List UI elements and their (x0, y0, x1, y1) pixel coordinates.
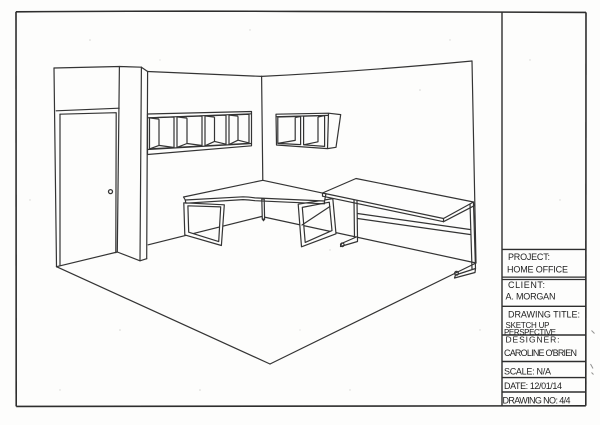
svg-text:SCALE: N/A: SCALE: N/A (504, 367, 551, 377)
svg-text:PROJECT:: PROJECT: (508, 252, 550, 262)
svg-text:A. MORGAN: A. MORGAN (506, 292, 556, 302)
svg-text:DATE: 12/01/14: DATE: 12/01/14 (504, 381, 562, 391)
svg-text:DRAWING NO: 4/4: DRAWING NO: 4/4 (503, 396, 571, 406)
svg-text:CAROLINE O'BRIEN: CAROLINE O'BRIEN (504, 348, 577, 358)
svg-text:CLIENT:: CLIENT: (508, 280, 545, 290)
svg-text:DRAWING TITLE:: DRAWING TITLE: (508, 310, 580, 320)
svg-text:HOME OFFICE: HOME OFFICE (507, 265, 568, 275)
svg-text:DESIGNER:: DESIGNER: (506, 335, 560, 345)
